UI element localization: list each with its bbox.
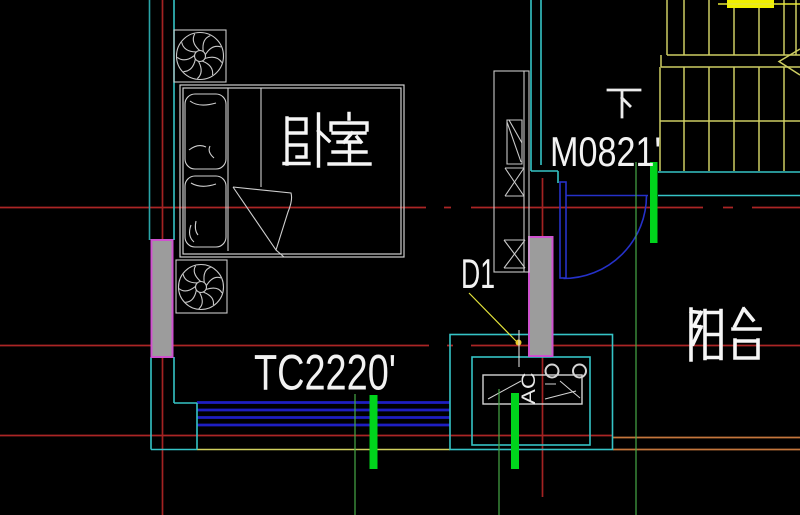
svg-text:TC2220': TC2220' [254,345,396,401]
svg-text:D1: D1 [461,250,495,297]
svg-text:AC: AC [519,373,540,405]
svg-text:M0821': M0821' [550,128,661,175]
